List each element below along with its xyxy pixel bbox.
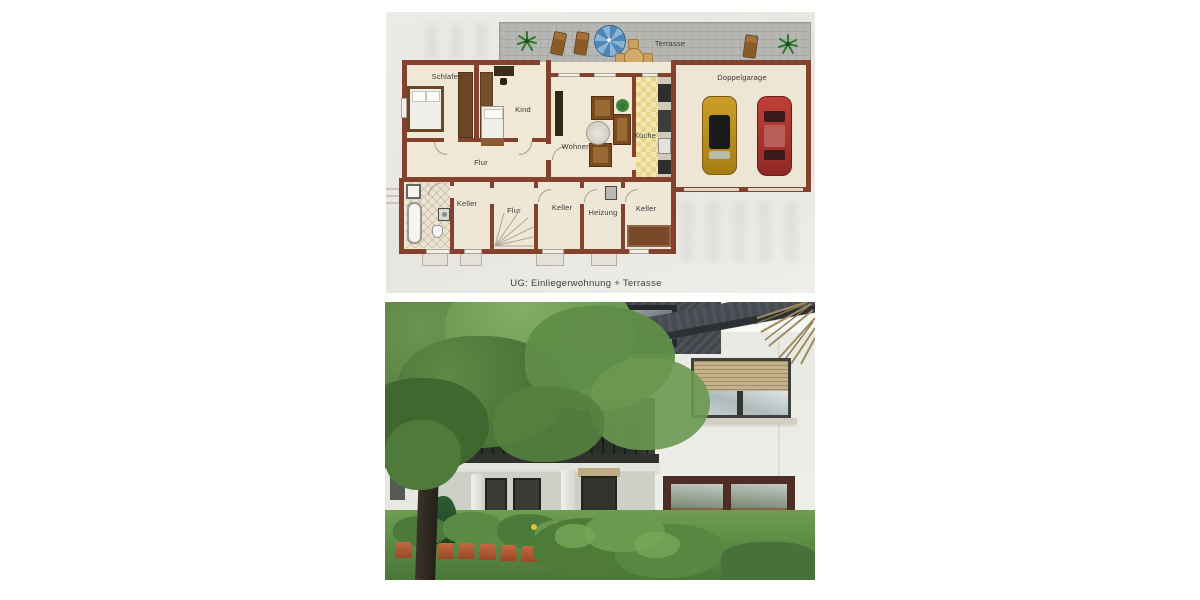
garden-chair xyxy=(628,39,639,49)
heater-unit xyxy=(605,186,617,200)
bed-foot xyxy=(481,138,504,146)
washer-door xyxy=(442,212,447,217)
wall xyxy=(632,73,636,157)
kitchen-tile-floor xyxy=(636,77,658,180)
parasol-center xyxy=(607,38,611,42)
garage-door xyxy=(684,188,739,191)
tv-cabinet xyxy=(555,91,563,136)
window-mullion xyxy=(737,391,743,415)
lightwell xyxy=(591,254,617,266)
floor-plan-image: Terrasse xyxy=(386,12,815,293)
window xyxy=(629,249,649,254)
plan-caption: UG: Einliegerwohnung + Terrasse xyxy=(444,278,728,289)
garage-door xyxy=(748,188,803,191)
wall xyxy=(450,180,454,186)
wall xyxy=(621,180,625,188)
lightwell xyxy=(536,254,564,266)
roller-shutter xyxy=(694,361,788,391)
room-label-keller-c: Keller xyxy=(618,205,674,213)
kitchen-appliance xyxy=(658,84,671,102)
room-label-wohnen: Wohnen xyxy=(548,143,604,151)
lounge-chair xyxy=(550,31,567,56)
wall xyxy=(676,60,810,65)
potted-plant xyxy=(616,99,629,112)
room-label-schlafen: Schlafen xyxy=(419,73,475,81)
palm-plant-icon xyxy=(777,33,799,60)
lounge-chair xyxy=(573,31,589,56)
yellow-flowers xyxy=(531,524,537,530)
wall xyxy=(671,60,676,192)
flower-pot xyxy=(437,543,454,559)
desk xyxy=(494,66,514,76)
kitchen-appliance xyxy=(658,160,671,174)
print-bleed xyxy=(681,202,806,262)
car-window xyxy=(764,111,785,122)
kitchen-sink xyxy=(658,138,671,154)
double-bed xyxy=(407,86,444,132)
desk-chair xyxy=(500,78,507,85)
outside-steps xyxy=(386,188,399,190)
armchair xyxy=(591,96,614,120)
room-label-kind: Kind xyxy=(495,106,551,114)
storage-shelf xyxy=(627,225,671,247)
car-window xyxy=(764,150,785,160)
outside-steps xyxy=(386,195,399,197)
wall xyxy=(806,60,811,192)
palm-fronds xyxy=(753,302,815,366)
stairs xyxy=(494,212,534,247)
terrace-door xyxy=(594,73,616,77)
flower-pot xyxy=(458,543,475,559)
wall xyxy=(580,180,584,188)
room-label-doppelgarage: Doppelgarage xyxy=(707,74,777,82)
wall xyxy=(399,178,404,254)
car-roof xyxy=(709,115,730,149)
room-label-flur-og: Flur xyxy=(453,159,509,167)
bathtub xyxy=(407,202,422,244)
room-label-kueche: Küche xyxy=(617,132,673,140)
kitchen-stove xyxy=(658,110,671,132)
car-roof xyxy=(764,125,785,147)
palm-plant-icon xyxy=(516,30,538,57)
balcony-slab-face xyxy=(433,463,659,471)
sink xyxy=(406,184,421,199)
flower-pot xyxy=(479,544,496,560)
wall xyxy=(671,192,676,254)
washing-machine xyxy=(438,208,450,221)
lightwell xyxy=(422,254,448,266)
window xyxy=(642,73,658,77)
wardrobe xyxy=(458,72,473,138)
toilet xyxy=(432,225,443,238)
car-red xyxy=(757,96,792,176)
car-windshield xyxy=(709,151,730,159)
flower-pot xyxy=(500,545,517,561)
house-photo xyxy=(385,302,815,580)
lounge-chair xyxy=(742,34,758,59)
page-background: Terrasse xyxy=(0,0,1200,600)
wall xyxy=(490,180,494,188)
cushion xyxy=(595,100,610,116)
pillow xyxy=(412,91,426,102)
flower-pot xyxy=(395,542,412,558)
sofa xyxy=(613,114,631,145)
pillow xyxy=(426,91,440,102)
hedge xyxy=(721,542,815,580)
outside-steps xyxy=(386,202,399,204)
wall xyxy=(534,180,538,188)
terrace-door xyxy=(558,73,580,77)
car-gold xyxy=(702,96,737,175)
room-label-terrasse: Terrasse xyxy=(642,40,698,48)
lightwell xyxy=(460,254,482,266)
wall xyxy=(402,60,540,65)
